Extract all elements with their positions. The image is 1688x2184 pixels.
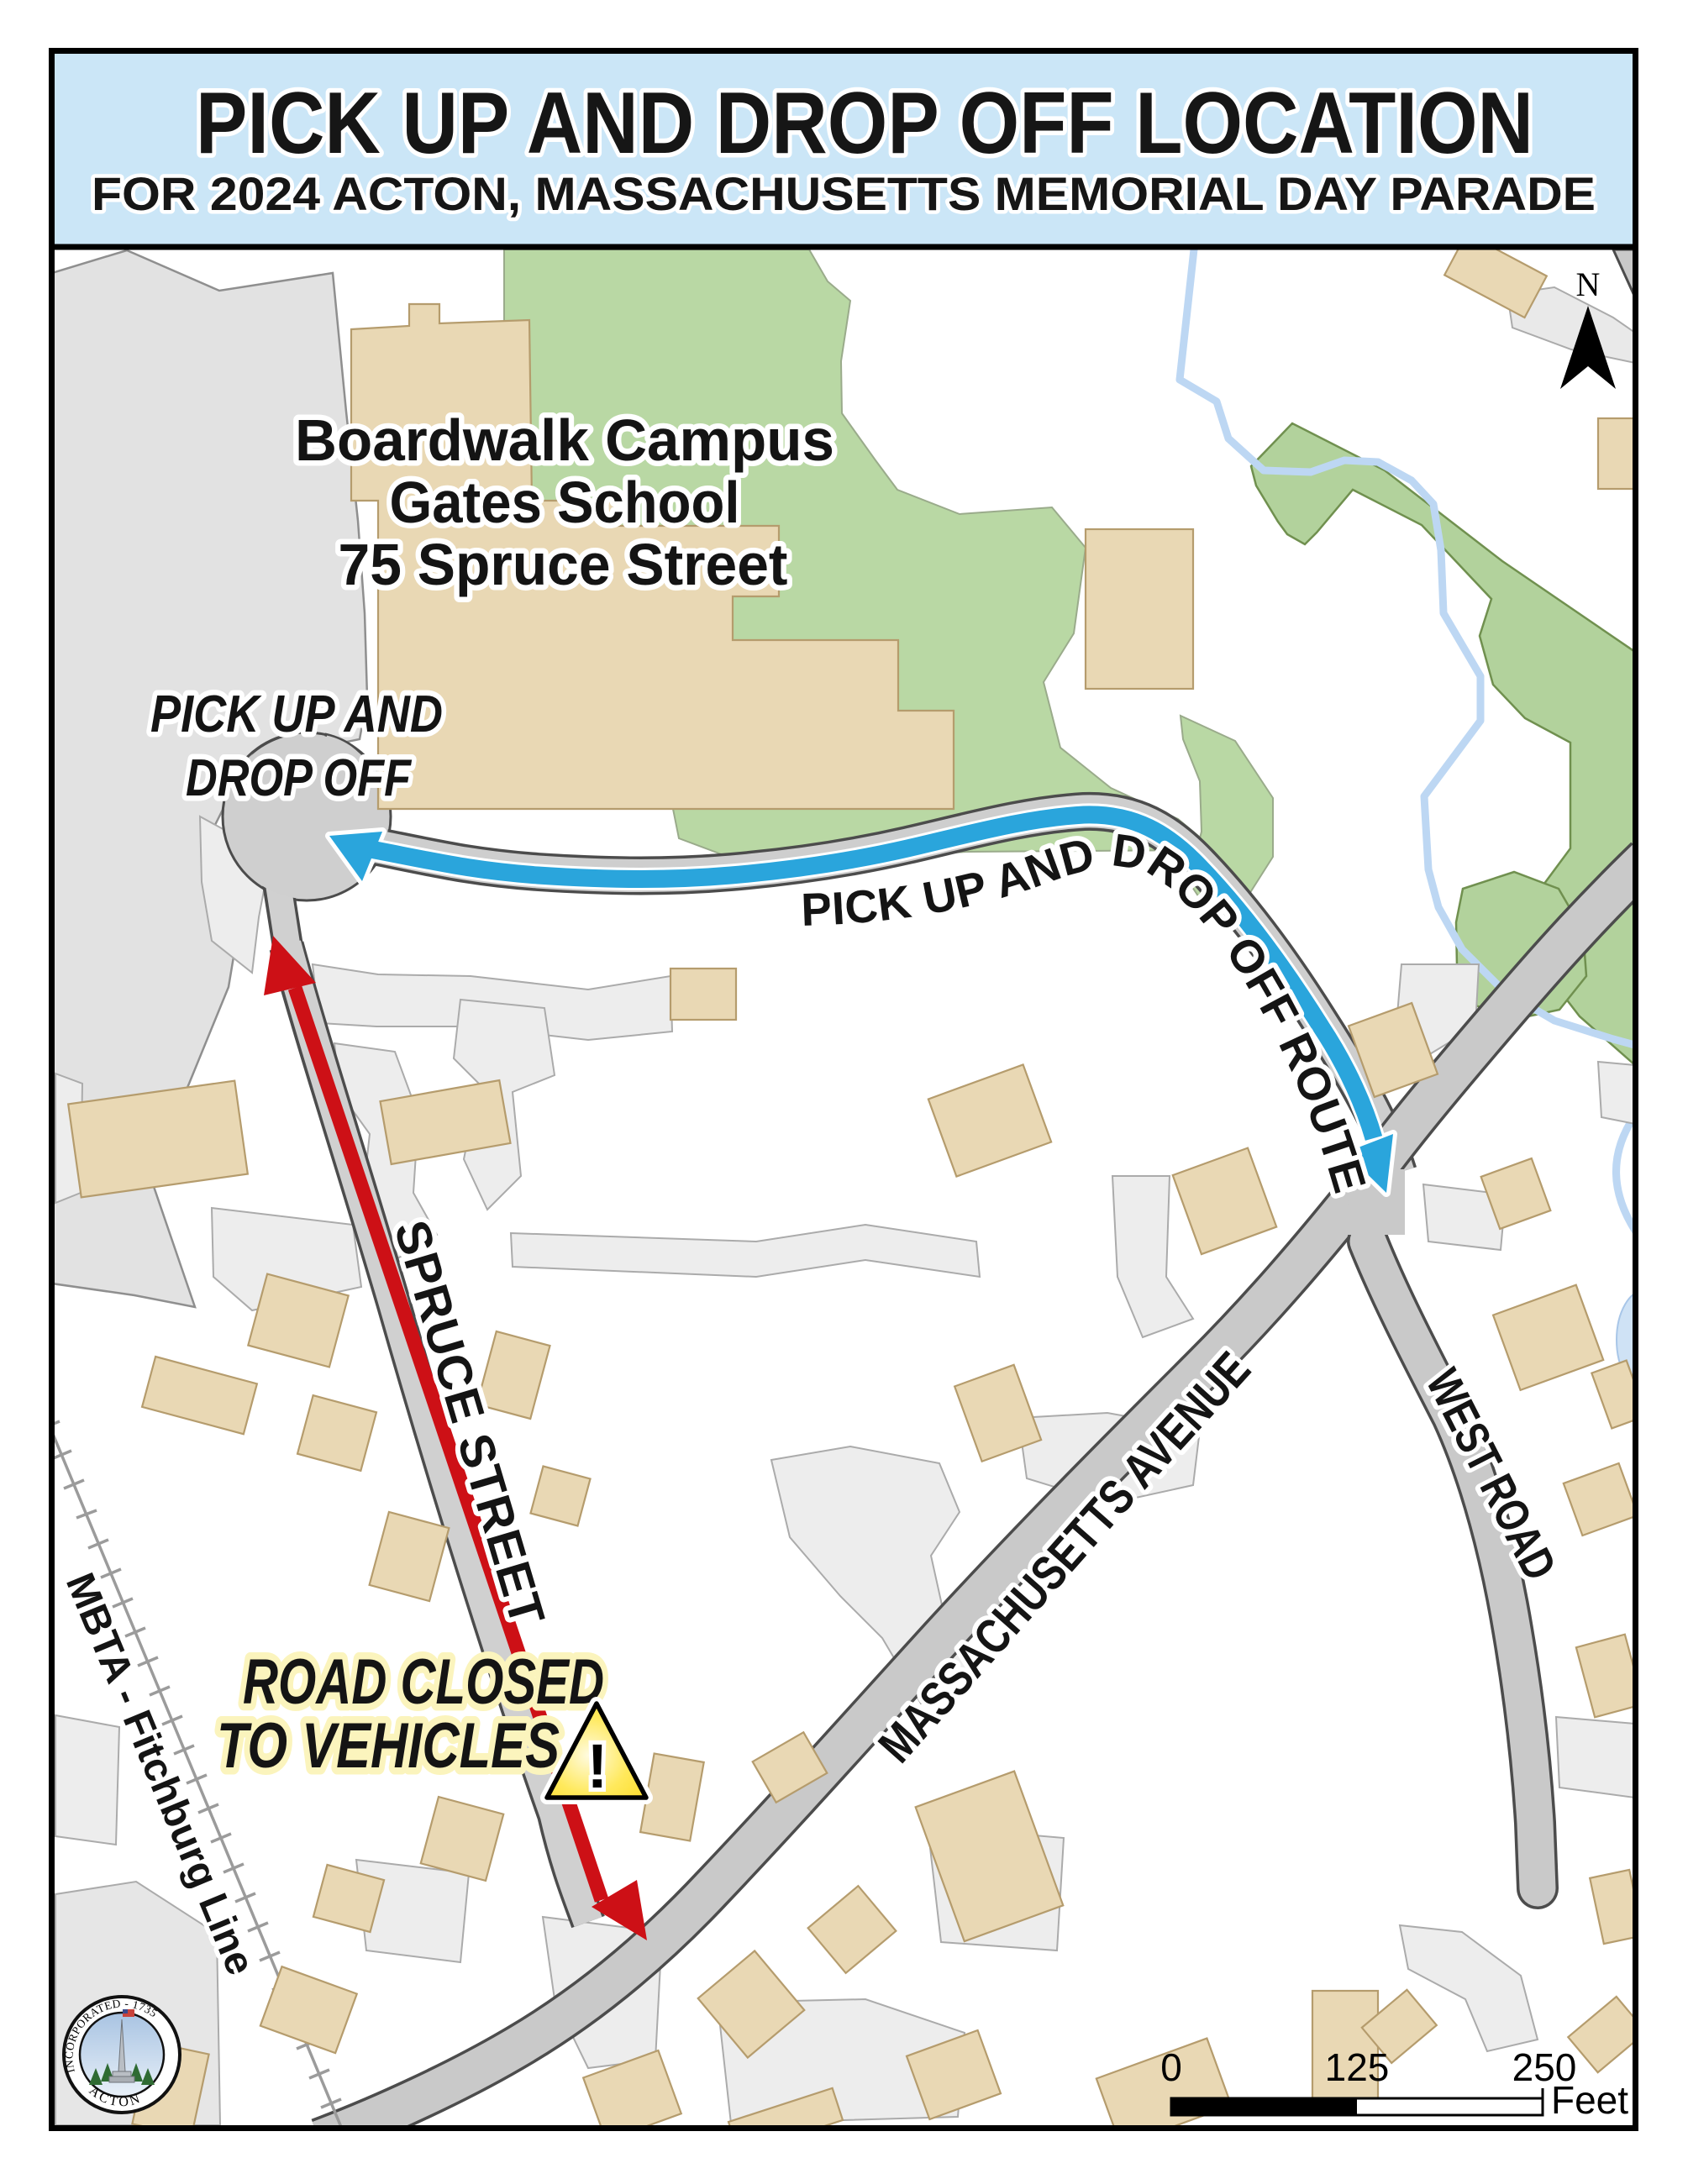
svg-text:FOR 2024 ACTON, MASSACHUSETTS: FOR 2024 ACTON, MASSACHUSETTS MEMORIAL D… [92,167,1596,220]
svg-text:125: 125 [1325,2045,1390,2089]
svg-text:ROAD CLOSED: ROAD CLOSED [243,1646,604,1718]
svg-text:N: N [1576,265,1601,303]
svg-text:0: 0 [1160,2045,1182,2089]
svg-text:PICK UP AND DROP OFF LOCATION: PICK UP AND DROP OFF LOCATION [196,75,1533,172]
svg-text:TO VEHICLES: TO VEHICLES [217,1710,560,1782]
svg-text:!: ! [587,1731,608,1801]
svg-text:DROP OFF: DROP OFF [186,749,413,807]
svg-text:Boardwalk Campus: Boardwalk Campus [295,407,834,473]
svg-text:75 Spruce Street: 75 Spruce Street [339,532,788,597]
svg-text:Gates School: Gates School [390,470,740,535]
svg-text:PICK UP AND: PICK UP AND [150,685,443,743]
svg-text:Feet: Feet [1551,2078,1628,2122]
